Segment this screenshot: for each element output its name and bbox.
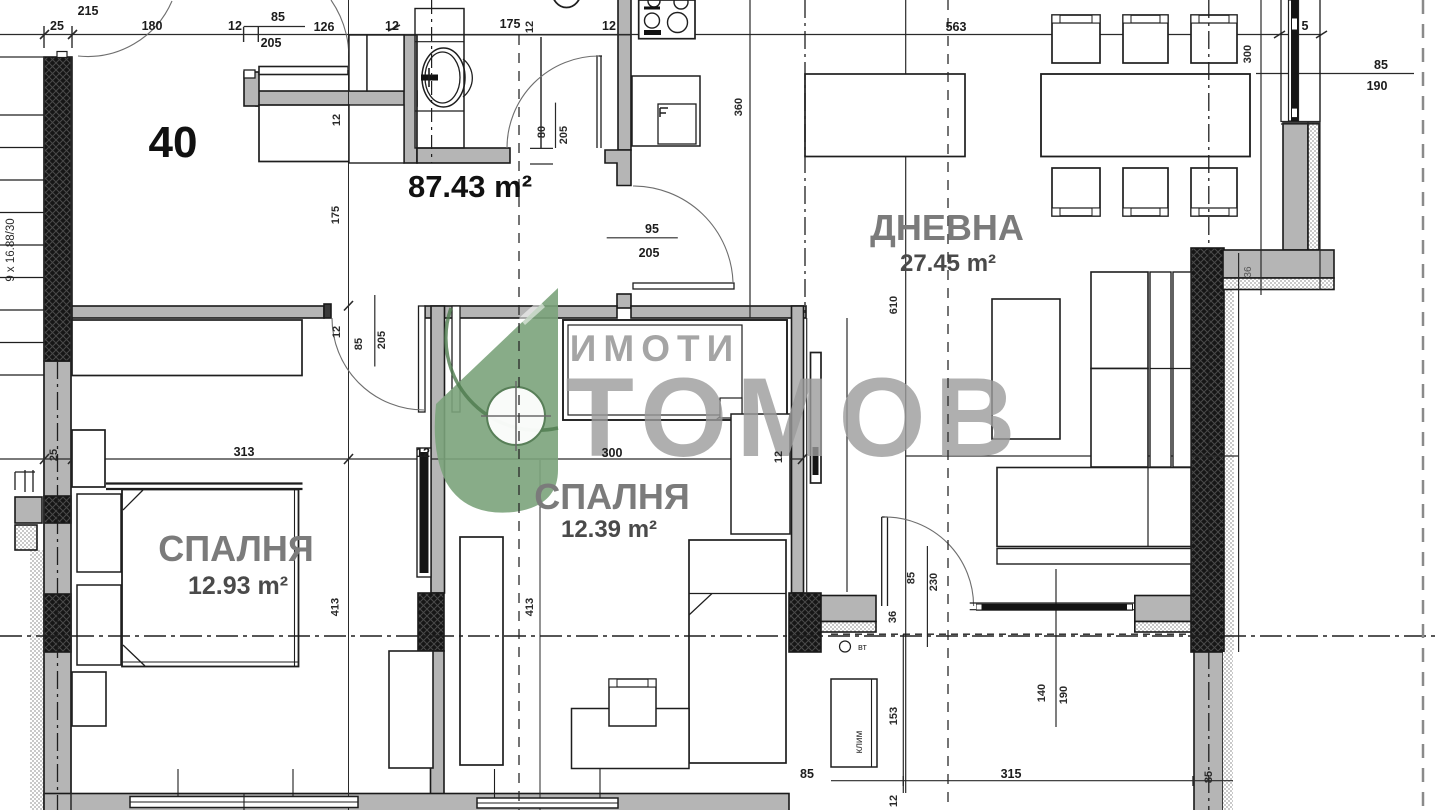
svg-text:80: 80: [536, 126, 548, 138]
svg-text:315: 315: [1001, 767, 1022, 781]
svg-text:95: 95: [645, 222, 659, 236]
svg-text:27.45 m²: 27.45 m²: [900, 250, 996, 277]
svg-text:153: 153: [888, 707, 900, 725]
svg-text:230: 230: [928, 573, 940, 591]
svg-text:вт: вт: [858, 642, 867, 652]
svg-text:300: 300: [1242, 45, 1254, 63]
svg-text:413: 413: [330, 598, 342, 616]
svg-text:12: 12: [773, 451, 785, 463]
svg-text:215: 215: [78, 4, 99, 18]
svg-text:12.93 m²: 12.93 m²: [188, 572, 288, 600]
svg-text:12: 12: [416, 446, 430, 460]
svg-text:ДНЕВНА: ДНЕВНА: [870, 207, 1024, 248]
svg-text:126: 126: [314, 20, 335, 34]
svg-text:360: 360: [733, 98, 745, 116]
svg-text:36: 36: [887, 611, 899, 623]
svg-text:12: 12: [602, 19, 616, 33]
svg-text:12: 12: [228, 19, 242, 33]
svg-text:190: 190: [1367, 79, 1388, 93]
svg-text:205: 205: [558, 126, 570, 144]
svg-text:190: 190: [1058, 686, 1070, 704]
svg-text:5: 5: [1302, 19, 1309, 33]
svg-text:85: 85: [271, 10, 285, 24]
svg-text:12: 12: [524, 21, 536, 33]
svg-text:87.43 m²: 87.43 m²: [408, 169, 532, 204]
svg-text:клим: клим: [854, 730, 865, 753]
svg-text:610: 610: [888, 296, 900, 314]
svg-text:205: 205: [376, 331, 388, 349]
svg-text:175: 175: [330, 206, 342, 224]
svg-text:85: 85: [1203, 771, 1215, 783]
svg-text:25: 25: [50, 19, 64, 33]
svg-text:300: 300: [602, 446, 623, 460]
svg-text:313: 313: [234, 445, 255, 459]
svg-text:СПАЛНЯ: СПАЛНЯ: [534, 476, 689, 517]
svg-text:12: 12: [385, 19, 399, 33]
svg-text:175: 175: [500, 17, 521, 31]
svg-text:180: 180: [142, 19, 163, 33]
svg-text:36: 36: [1243, 266, 1254, 278]
svg-text:СПАЛНЯ: СПАЛНЯ: [158, 528, 313, 569]
svg-text:85: 85: [800, 767, 814, 781]
svg-text:12: 12: [331, 114, 343, 126]
svg-text:85: 85: [906, 572, 918, 584]
svg-text:12.39 m²: 12.39 m²: [561, 516, 657, 543]
svg-text:25: 25: [48, 449, 60, 461]
svg-text:413: 413: [524, 598, 536, 616]
svg-text:563: 563: [946, 20, 967, 34]
svg-text:140: 140: [1036, 684, 1048, 702]
svg-text:205: 205: [261, 36, 282, 50]
svg-text:12: 12: [888, 795, 900, 807]
svg-text:12: 12: [331, 326, 343, 338]
svg-text:85: 85: [353, 338, 365, 350]
svg-text:ТОМОВ: ТОМОВ: [565, 355, 1024, 480]
svg-text:205: 205: [639, 246, 660, 260]
svg-text:85: 85: [1374, 58, 1388, 72]
svg-text:9 x 16.88/30: 9 x 16.88/30: [5, 218, 17, 281]
svg-text:40: 40: [149, 118, 198, 167]
